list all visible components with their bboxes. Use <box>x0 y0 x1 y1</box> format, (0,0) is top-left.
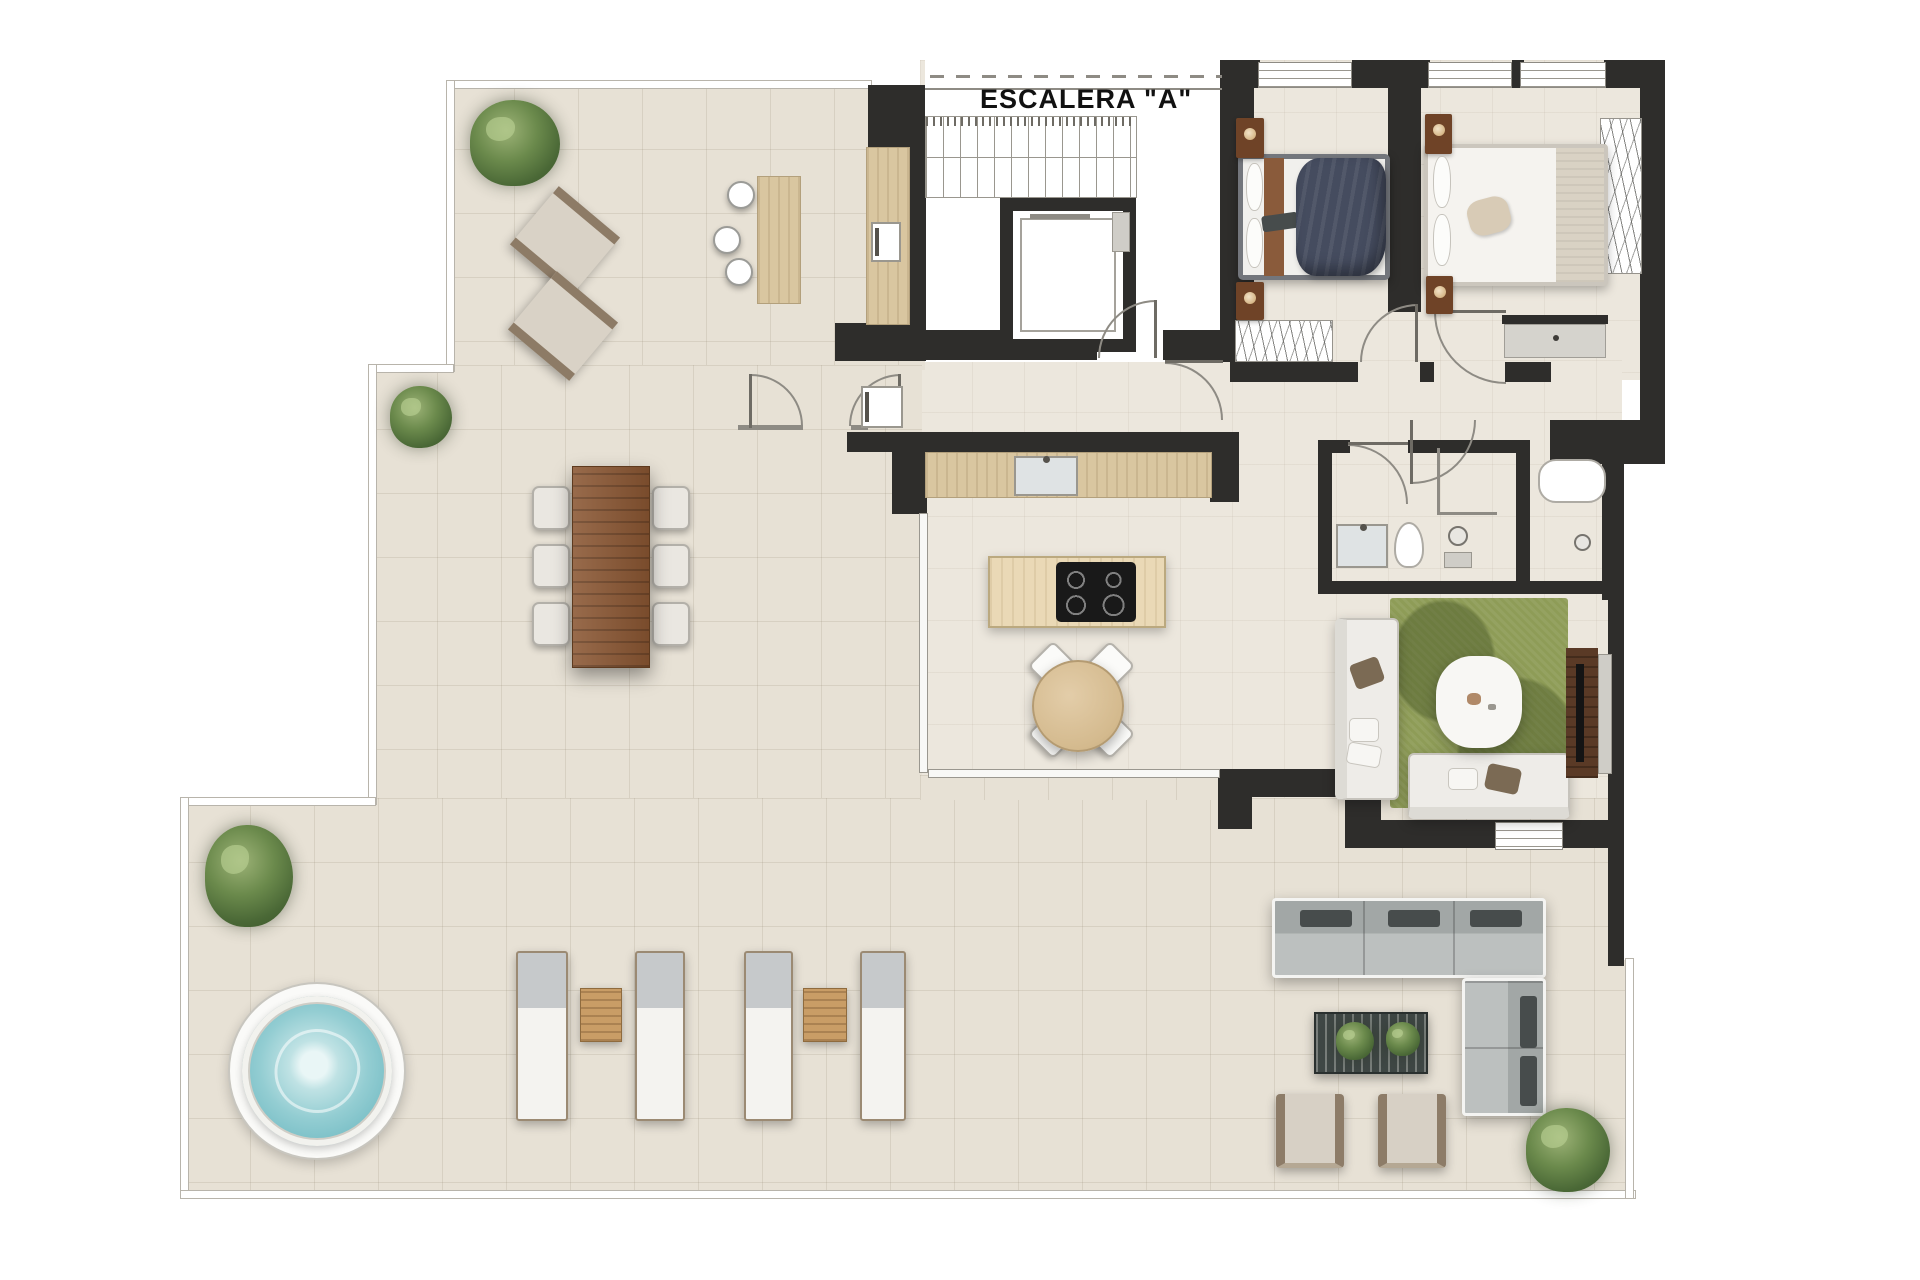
elevator-counterweight <box>1112 212 1130 252</box>
parapet-step-1 <box>368 364 454 373</box>
kitchen-sink <box>1014 456 1078 496</box>
bed2-foot-blanket <box>1556 148 1604 282</box>
outdoor-pillow-4 <box>1520 996 1537 1048</box>
wall-dresser-line <box>1502 315 1608 324</box>
window-bedroom2-a <box>1428 62 1512 88</box>
hot-tub <box>242 996 392 1146</box>
tv-screen <box>1576 664 1584 762</box>
exterior-notch-upper <box>1622 453 1668 603</box>
bed1-nightstand-top <box>1236 118 1264 158</box>
bed1-wardrobe <box>1235 320 1333 362</box>
bed1-pillow-top <box>1246 163 1263 211</box>
sun-lounger-3 <box>744 951 793 1121</box>
wall-stair-left-strip <box>910 147 926 325</box>
outdoor-pillow-5 <box>1520 1056 1537 1106</box>
sun-lounger-4 <box>860 951 906 1121</box>
terrace-dining-table <box>572 466 650 668</box>
terrace-floor-strip <box>920 775 1220 800</box>
terrace-chair-r3 <box>652 602 690 646</box>
bath1-sink <box>1336 524 1388 568</box>
wall-top-2 <box>1352 60 1430 88</box>
bath2-tub <box>1538 459 1606 503</box>
sofa-vertical <box>1335 618 1399 800</box>
dining-table-indoor <box>1032 660 1124 752</box>
door-leaf-bath2 <box>1410 420 1413 484</box>
window-living <box>1495 822 1563 850</box>
wall-right-chunk <box>1550 420 1665 464</box>
wall-counter-end <box>1210 452 1239 502</box>
window-bedroom2-b <box>1520 62 1606 88</box>
bar-counter <box>757 176 801 304</box>
slat-table-plant-2 <box>1386 1022 1420 1056</box>
bed2-pillow-top <box>1433 156 1451 208</box>
bath1-toilet <box>1394 522 1424 568</box>
sun-lounger-1 <box>516 951 568 1121</box>
door-leaf-bedroom1 <box>1415 304 1418 362</box>
kitchen-appliance <box>861 386 903 428</box>
outdoor-pillow-1 <box>1300 910 1352 927</box>
exterior-notch-lower <box>1624 598 1668 960</box>
wall-bath1-top-a <box>1318 440 1350 453</box>
wall-between-bedrooms <box>1388 88 1421 312</box>
parapet-bottom <box>180 1190 1636 1199</box>
wall-kitchen-corner <box>892 452 927 514</box>
parapet-left-upper <box>446 80 455 372</box>
wall-bath-bottom <box>1318 581 1610 594</box>
bed1-nightstand-bottom <box>1236 282 1264 320</box>
sofa-pillow-white-1 <box>1349 718 1379 742</box>
wall-dining-corner <box>1218 769 1252 829</box>
bath1-mirror-lamp <box>1448 526 1468 546</box>
bed2-nightstand-bottom <box>1426 276 1453 314</box>
bed2-nightstand-top <box>1425 114 1452 154</box>
terrace-chair-l2 <box>532 544 570 588</box>
sun-lounger-2 <box>635 951 685 1121</box>
lounger-side-table-2 <box>803 988 847 1042</box>
parapet-top <box>446 80 872 89</box>
glass-wall-vertical <box>919 513 928 773</box>
cabinet-appliance <box>871 222 901 262</box>
plant-terrace-left <box>205 825 293 927</box>
terrace-chair-l1 <box>532 486 570 530</box>
wall-top-4 <box>1604 60 1665 88</box>
wall-right-bedroom2 <box>1640 88 1665 422</box>
bath2-shower-head <box>1574 534 1591 551</box>
bed2-dresser <box>1504 324 1606 358</box>
plant-terrace-mid <box>390 386 452 448</box>
coffee-table <box>1436 656 1522 748</box>
parapet-left-lower <box>180 797 189 1199</box>
bath2-shower-glass-h <box>1437 512 1497 515</box>
terrace-chair-r1 <box>652 486 690 530</box>
parapet-right <box>1625 958 1634 1199</box>
plant-terrace-bottomright <box>1526 1108 1610 1192</box>
bar-stool-1 <box>727 181 755 209</box>
bar-stool-3 <box>725 258 753 286</box>
terrace-chair-r2 <box>652 544 690 588</box>
wall-bath-divider <box>1516 440 1530 593</box>
cooktop <box>1056 562 1136 622</box>
bath1-stand <box>1444 552 1472 568</box>
terrace-chair-l3 <box>532 602 570 646</box>
staircase <box>925 116 1137 198</box>
lounger-side-table-1 <box>580 988 622 1042</box>
outdoor-pillow-3 <box>1470 910 1522 927</box>
window-bedroom1 <box>1258 62 1352 88</box>
bed2-pillow-bottom <box>1433 214 1451 266</box>
plant-terrace-top <box>470 100 560 186</box>
door-leaf-hall-exit <box>1154 300 1157 358</box>
tv-shelf <box>1598 654 1612 774</box>
bar-stool-2 <box>713 226 741 254</box>
outdoor-pillow-2 <box>1388 910 1440 927</box>
floor-plan-canvas: ESCALERA "A" <box>0 0 1920 1280</box>
wall-stair-top-chunk <box>868 85 925 147</box>
wall-bath1-left <box>1318 440 1332 593</box>
parapet-left-mid <box>368 364 377 805</box>
wall-kitchen-top <box>847 432 1239 452</box>
door-leaf-french-left <box>749 374 752 428</box>
wall-top-1 <box>1220 60 1260 88</box>
wall-stair-bottom-chunk <box>835 323 926 361</box>
outdoor-armchair-1 <box>1276 1094 1344 1168</box>
outdoor-armchair-2 <box>1378 1094 1446 1168</box>
bed1-duvet <box>1296 158 1386 276</box>
sofa-pillow-white-3 <box>1448 768 1478 790</box>
wall-bed2-bottom-stub <box>1420 362 1434 382</box>
slat-table-plant-1 <box>1336 1022 1374 1060</box>
glass-wall-horizontal <box>928 769 1220 778</box>
stair-label: ESCALERA "A" <box>980 84 1192 115</box>
parapet-step-2 <box>180 797 376 806</box>
wall-bed2-bottom <box>1505 362 1551 382</box>
bed1-pillow-bottom <box>1246 218 1263 268</box>
stair-open-dashed-line <box>930 75 1222 78</box>
door-leaf-corridor <box>1165 360 1223 363</box>
wall-bed1-bottom <box>1230 362 1358 382</box>
door-leaf-bath1 <box>1348 442 1408 445</box>
